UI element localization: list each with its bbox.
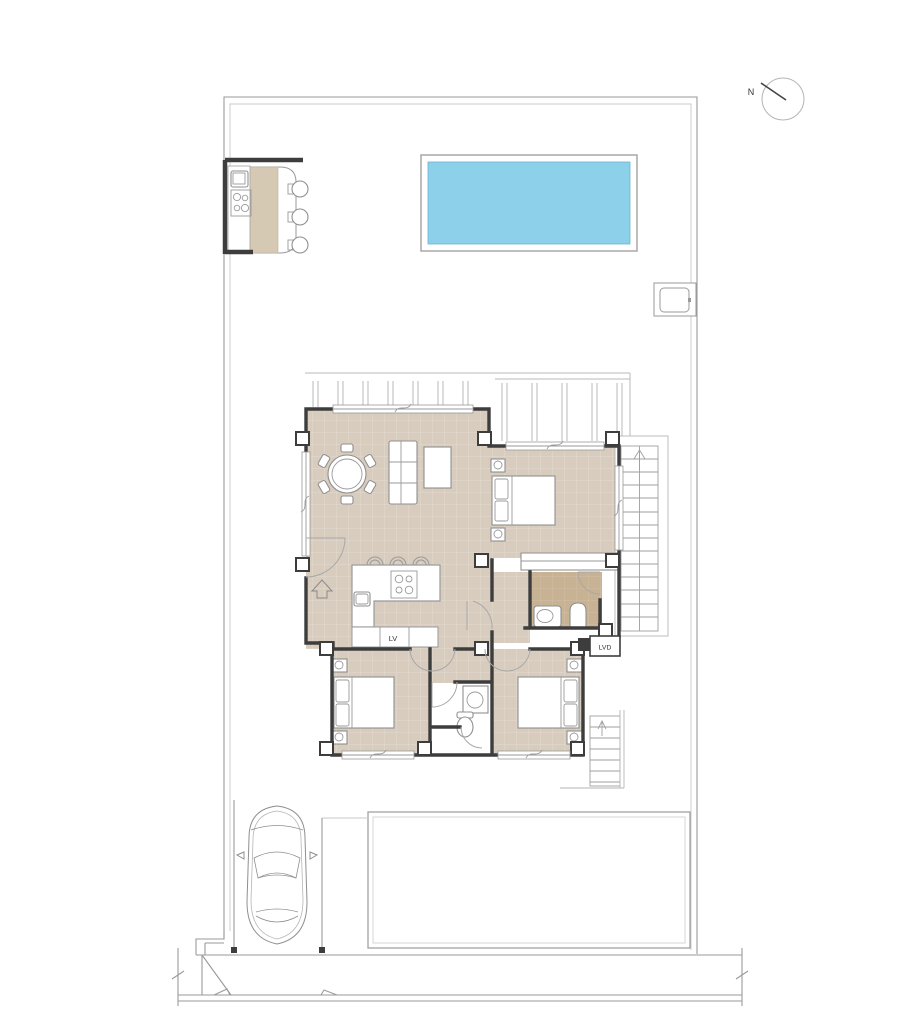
carport	[231, 800, 325, 953]
compass-label: N	[748, 87, 755, 97]
ensuite-toilet	[570, 603, 586, 628]
bed-3	[518, 677, 579, 728]
window	[506, 441, 604, 450]
laundry-nook-floor	[489, 572, 530, 643]
nightstand	[491, 459, 505, 472]
car	[237, 806, 317, 944]
window	[614, 466, 623, 550]
nightstand	[332, 659, 347, 672]
bathroom-2-door	[432, 682, 457, 707]
pool-water	[428, 162, 630, 244]
kitchen-sink	[354, 592, 370, 606]
ensuite-fixtures	[534, 603, 586, 628]
sidewalk	[172, 948, 748, 1006]
terrace	[322, 812, 690, 948]
window	[333, 404, 473, 413]
bed-2	[334, 677, 394, 728]
ensuite-sink	[534, 606, 561, 627]
compass: N	[748, 78, 804, 120]
dishwasher-label: LV	[389, 634, 398, 643]
outdoor-sink	[231, 171, 248, 187]
coffee-table	[424, 447, 451, 488]
utility-box	[654, 283, 696, 316]
nightstand	[491, 528, 505, 541]
gate-swing-marks	[214, 989, 337, 995]
laundry-column	[578, 638, 590, 651]
wardrobe	[521, 553, 618, 570]
window	[342, 750, 414, 759]
master-bed	[492, 476, 555, 525]
window	[498, 750, 570, 759]
kitchen-counter: LV	[352, 627, 438, 647]
floor-plan-drawing: N	[0, 0, 909, 1024]
outdoor-counter-top	[250, 167, 278, 253]
window	[301, 452, 310, 556]
nightstand	[567, 659, 582, 672]
toilet	[457, 712, 473, 737]
car-windshield	[254, 852, 300, 878]
pool	[421, 155, 637, 251]
nightstand	[332, 731, 347, 744]
compass-circle	[762, 78, 804, 120]
bathroom-sink	[463, 686, 488, 713]
sofa	[389, 441, 417, 504]
bathroom-2-fixtures	[457, 686, 488, 737]
washer-label: LVD	[599, 645, 612, 652]
outdoor-kitchen	[225, 160, 308, 254]
floor-plan-page: N	[0, 0, 909, 1024]
